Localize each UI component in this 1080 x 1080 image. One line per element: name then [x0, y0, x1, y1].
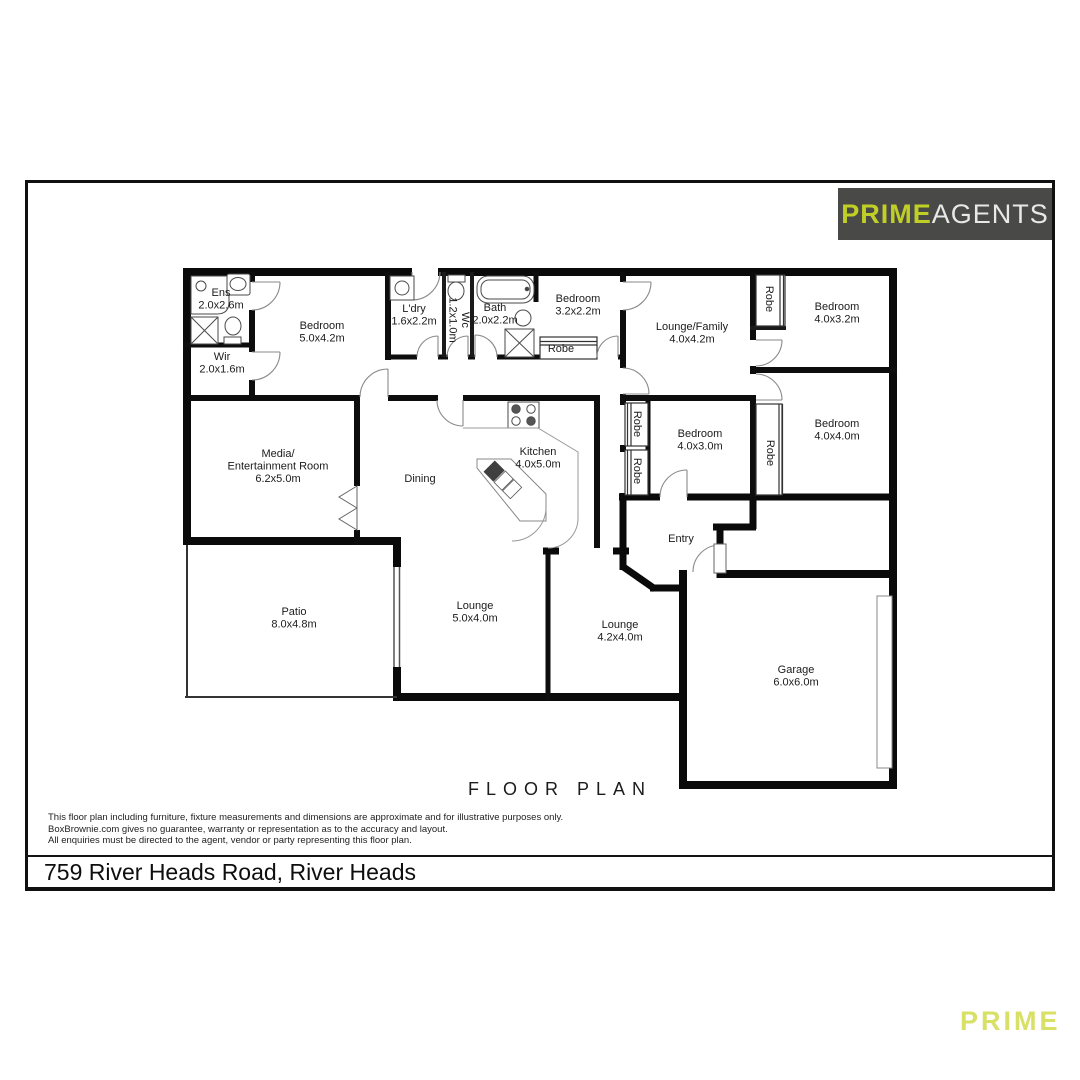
room-label-bedroom-1: Bedroom5.0x4.2m [299, 320, 344, 345]
toilet-icon [224, 317, 241, 344]
room-label-robe-bed3: Robe [763, 286, 775, 312]
patio-window [394, 567, 400, 667]
room-label-bath: Bath2.0x2.2m [472, 302, 517, 327]
room-label-bedroom-2: Bedroom3.2x2.2m [555, 293, 600, 318]
floor-plan-page: Ens2.0x2.6mBedroom5.0x4.2mWir2.0x1.6mL'd… [0, 0, 1080, 1080]
room-label-bedroom-3: Bedroom4.0x3.2m [814, 301, 859, 326]
room-label-bedroom-5: Bedroom4.0x4.0m [814, 418, 859, 443]
room-label-lounge-1: Lounge5.0x4.0m [452, 600, 497, 625]
room-label-patio: Patio8.0x4.8m [271, 606, 316, 631]
address-bar: 759 River Heads Road, River Heads [25, 855, 1055, 887]
disclaimer: This floor plan including furniture, fix… [48, 812, 563, 847]
room-label-laundry: L'dry1.6x2.2m [391, 303, 436, 328]
room-label-lounge-2: Lounge4.2x4.0m [597, 619, 642, 644]
disclaimer-line-3: All enquiries must be directed to the ag… [48, 835, 563, 847]
room-label-entry: Entry [668, 533, 694, 545]
room-label-robe-hall: Robe [548, 343, 574, 355]
logo-agents-text: AGENTS [932, 199, 1049, 230]
shower-tray-icon [191, 317, 218, 344]
room-label-lounge-family: Lounge/Family4.0x4.2m [656, 321, 729, 346]
wc-toilet-icon [448, 275, 465, 300]
property-address: 759 River Heads Road, River Heads [44, 859, 416, 886]
plan-title: FLOOR PLAN [400, 779, 720, 800]
watermark-logo: PRIME [960, 1006, 1061, 1037]
room-label-bedroom-4: Bedroom4.0x3.0m [677, 428, 722, 453]
floor-plan-drawing: Ens2.0x2.6mBedroom5.0x4.2mWir2.0x1.6mL'd… [0, 0, 1080, 1080]
disclaimer-line-1: This floor plan including furniture, fix… [48, 812, 563, 824]
bathtub-icon [477, 276, 534, 303]
room-label-robe-hall-2: Robe [631, 411, 643, 437]
agency-logo: PRIMEAGENTS [838, 188, 1052, 240]
room-label-wir: Wir2.0x1.6m [199, 351, 244, 376]
stove-icon [508, 402, 539, 428]
disclaimer-line-2: BoxBrownie.com gives no guarantee, warra… [48, 824, 563, 836]
room-label-media: Media/Entertainment Room6.2x5.0m [228, 448, 329, 485]
room-label-robe-hall-3: Robe [631, 458, 643, 484]
logo-prime-text: PRIME [841, 199, 932, 230]
laundry-tub-icon [390, 276, 414, 300]
front-door-leaf [714, 544, 726, 573]
media-double-doors [339, 486, 357, 530]
room-label-kitchen: Kitchen4.0x5.0m [515, 446, 560, 471]
bath-shower-icon [505, 329, 534, 357]
garage-door [877, 596, 892, 768]
room-label-robe-bed5: Robe [764, 440, 776, 466]
room-label-dining: Dining [404, 473, 435, 485]
room-label-garage: Garage6.0x6.0m [773, 664, 818, 689]
